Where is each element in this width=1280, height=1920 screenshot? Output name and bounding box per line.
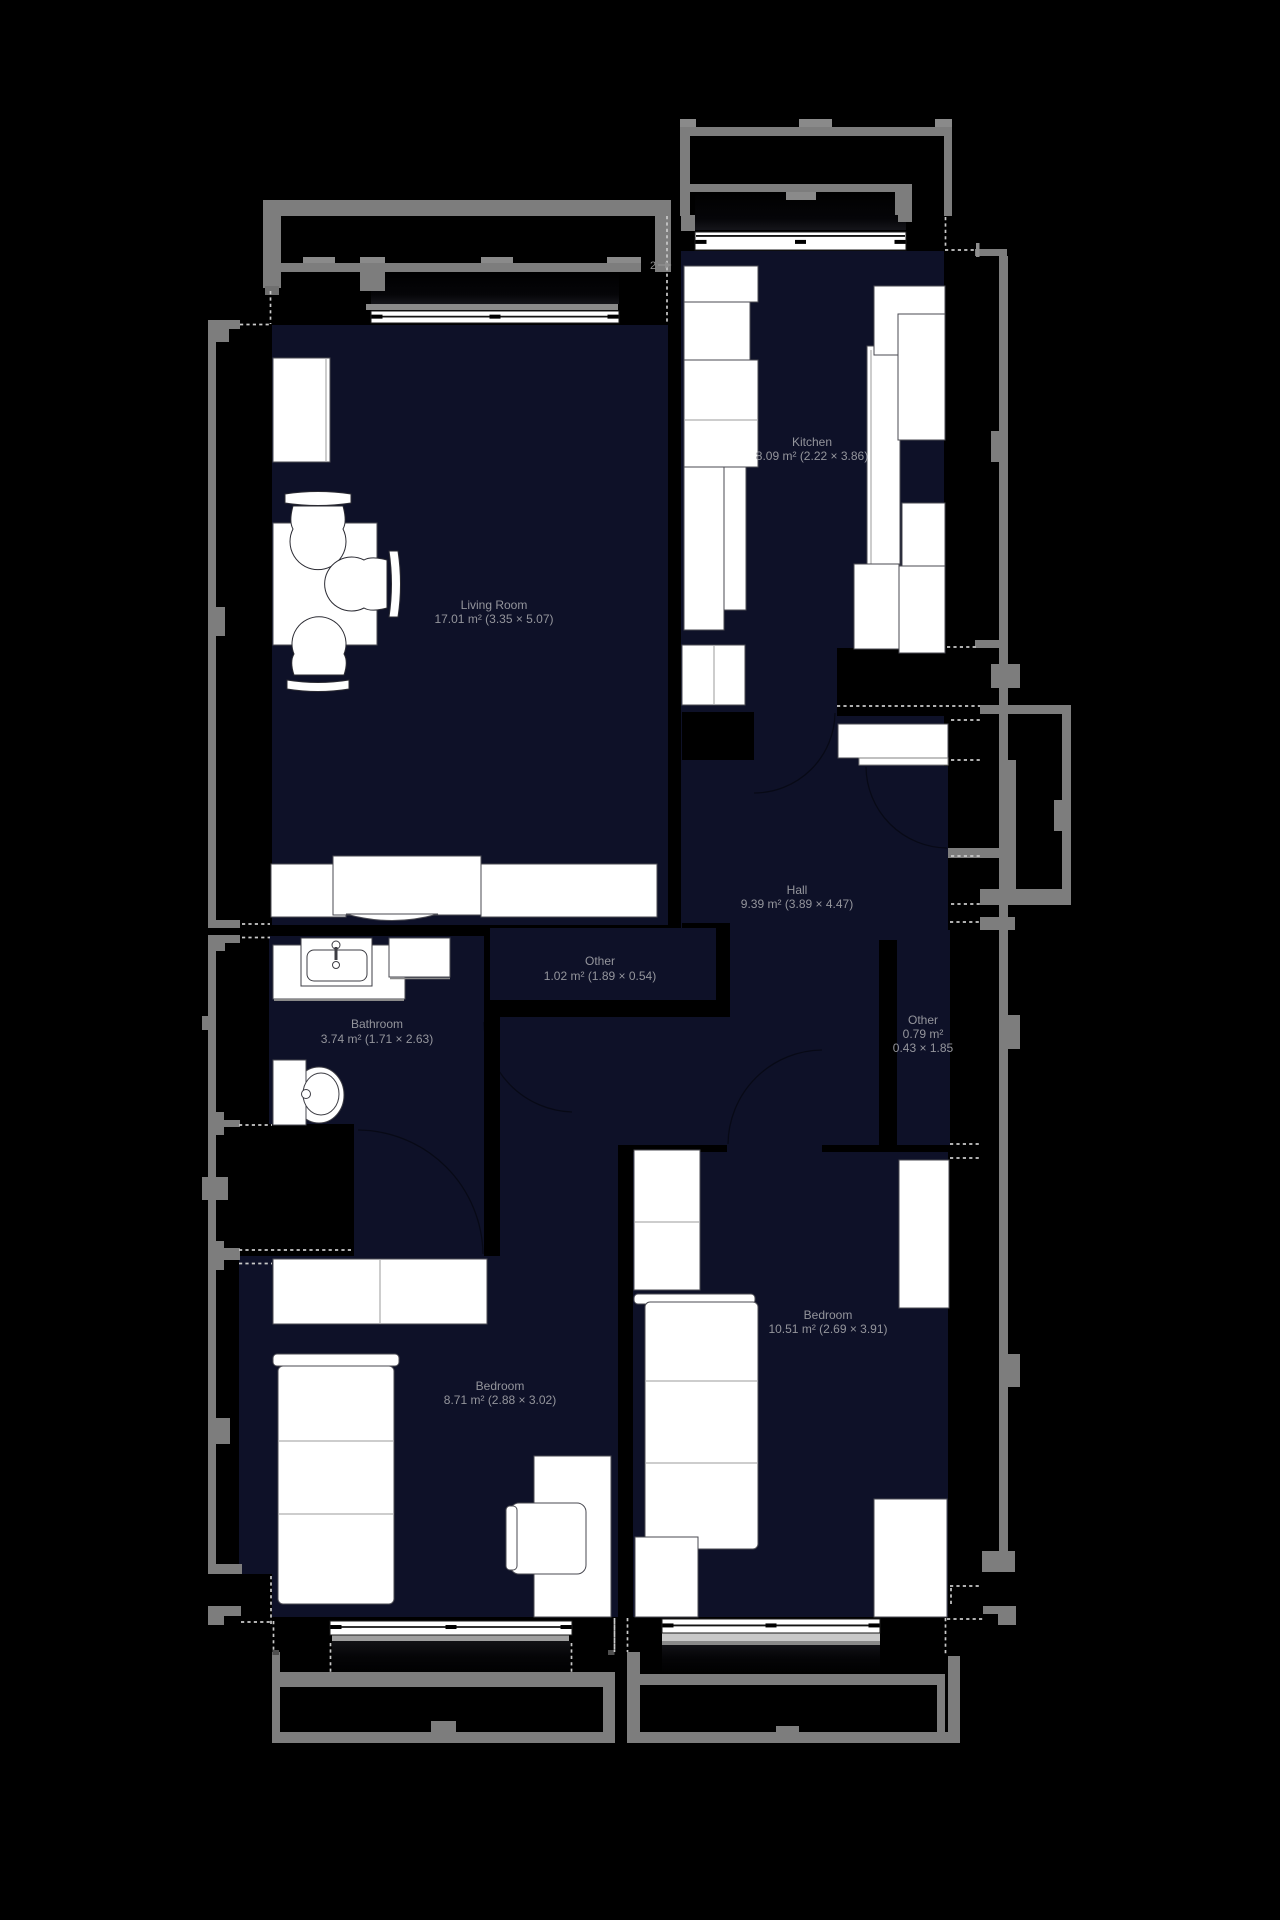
- svg-text:8.09 m² (2.22 × 3.86): 8.09 m² (2.22 × 3.86): [756, 449, 868, 463]
- svg-text:8.71 m² (2.88 × 3.02): 8.71 m² (2.88 × 3.02): [444, 1393, 556, 1407]
- svg-text:Other: Other: [908, 1013, 938, 1027]
- svg-text:Hall: Hall: [787, 883, 808, 897]
- svg-text:Kitchen: Kitchen: [792, 435, 832, 449]
- svg-text:Bedroom: Bedroom: [804, 1308, 853, 1322]
- svg-text:0.43 × 1.85: 0.43 × 1.85: [893, 1041, 954, 1055]
- svg-text:9.39 m² (3.89 × 4.47): 9.39 m² (3.89 × 4.47): [741, 897, 853, 911]
- svg-text:17.01 m² (3.35 × 5.07): 17.01 m² (3.35 × 5.07): [434, 612, 553, 626]
- svg-text:10.51 m² (2.69 × 3.91): 10.51 m² (2.69 × 3.91): [768, 1322, 887, 1336]
- svg-text:Other: Other: [585, 954, 615, 968]
- svg-text:Bedroom: Bedroom: [476, 1379, 525, 1393]
- svg-text:1.02 m² (1.89 × 0.54): 1.02 m² (1.89 × 0.54): [544, 969, 656, 983]
- svg-text:3.74 m² (1.71 × 2.63): 3.74 m² (1.71 × 2.63): [321, 1032, 433, 1046]
- svg-text:Bathroom: Bathroom: [351, 1017, 403, 1031]
- svg-text:2: 2: [650, 260, 656, 272]
- svg-text:0.79 m²: 0.79 m²: [903, 1027, 944, 1041]
- svg-text:Living Room: Living Room: [461, 598, 528, 612]
